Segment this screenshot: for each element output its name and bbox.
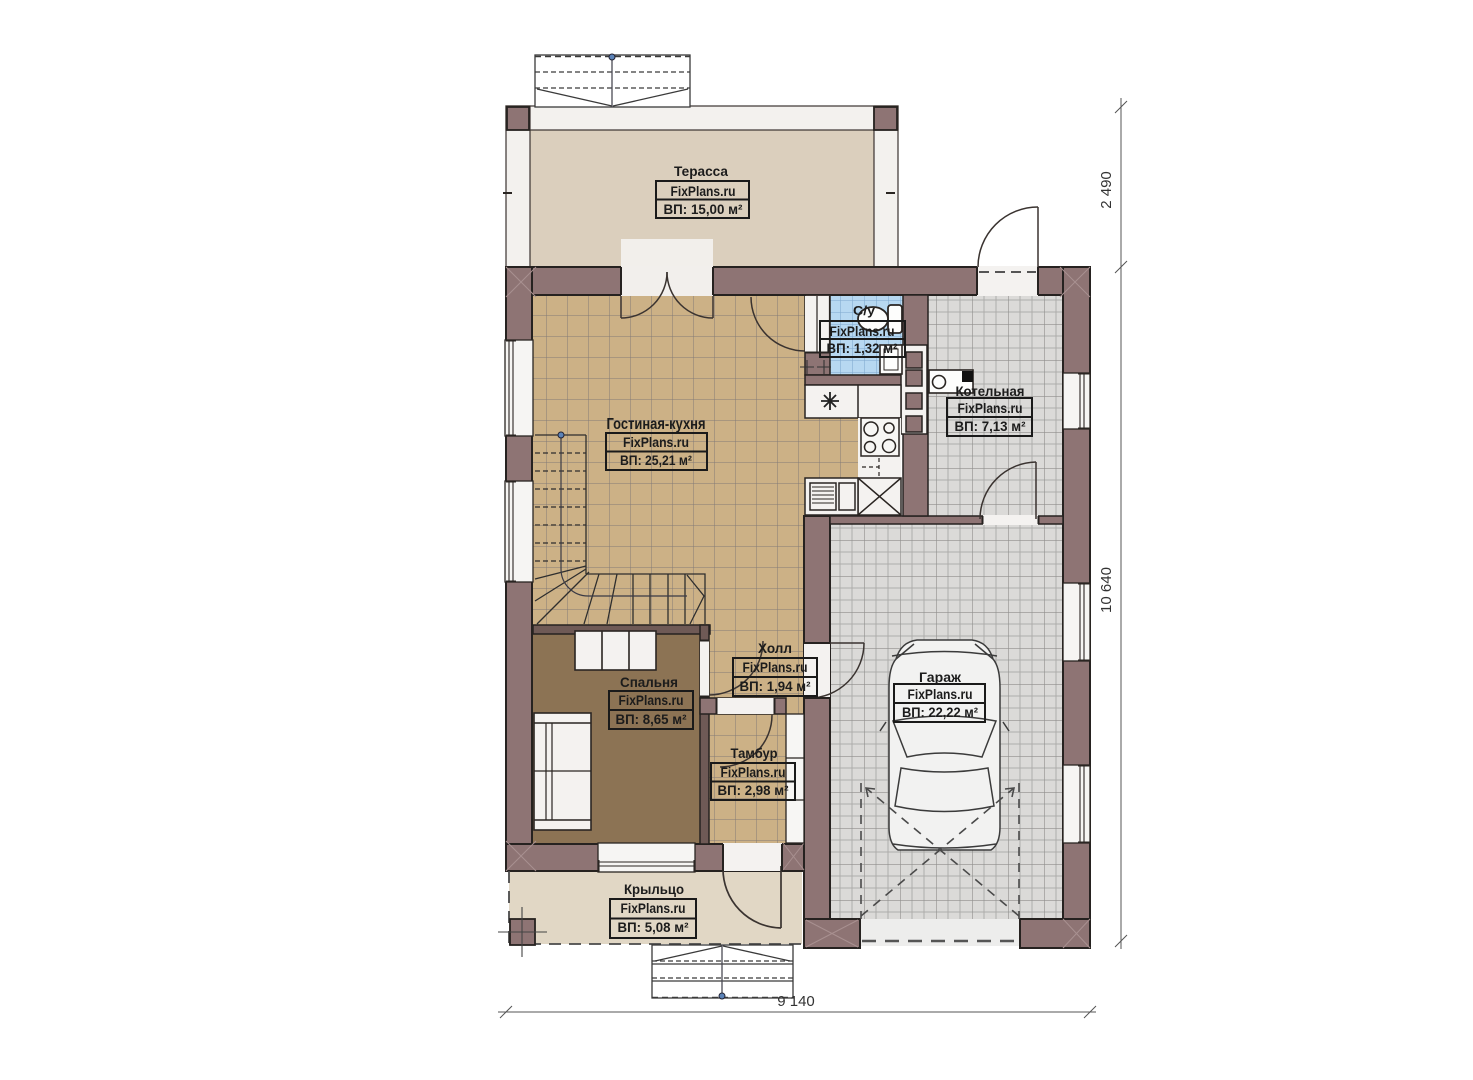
svg-text:Крыльцо: Крыльцо — [624, 881, 684, 897]
svg-text:Гостиная-кухня: Гостиная-кухня — [607, 416, 706, 433]
svg-text:FixPlans.ru: FixPlans.ru — [743, 659, 808, 675]
svg-text:Котельная: Котельная — [956, 383, 1025, 399]
svg-text:Холл: Холл — [758, 640, 792, 656]
svg-text:ВП: 8,65 м²: ВП: 8,65 м² — [616, 711, 687, 727]
svg-text:ВП: 25,21 м²: ВП: 25,21 м² — [620, 452, 692, 468]
svg-text:9 140: 9 140 — [777, 993, 815, 1010]
svg-text:ВП: 1,32 м²: ВП: 1,32 м² — [827, 340, 898, 356]
svg-text:FixPlans.ru: FixPlans.ru — [621, 900, 686, 916]
svg-text:FixPlans.ru: FixPlans.ru — [958, 400, 1023, 416]
svg-text:10 640: 10 640 — [1098, 567, 1115, 613]
svg-text:ВП: 15,00 м²: ВП: 15,00 м² — [664, 201, 743, 217]
svg-text:Терасса: Терасса — [674, 163, 728, 179]
svg-text:ВП: 7,13 м²: ВП: 7,13 м² — [955, 418, 1026, 434]
svg-text:FixPlans.ru: FixPlans.ru — [908, 686, 973, 702]
svg-text:Тамбур: Тамбур — [731, 745, 778, 761]
svg-text:FixPlans.ru: FixPlans.ru — [619, 692, 684, 708]
svg-text:FixPlans.ru: FixPlans.ru — [623, 434, 689, 450]
svg-text:ВП: 2,98 м²: ВП: 2,98 м² — [718, 782, 789, 798]
svg-text:FixPlans.ru: FixPlans.ru — [671, 183, 736, 199]
svg-text:ВП: 5,08 м²: ВП: 5,08 м² — [618, 919, 689, 935]
svg-text:FixPlans.ru: FixPlans.ru — [721, 764, 786, 780]
svg-text:ВП: 22,22 м²: ВП: 22,22 м² — [902, 704, 978, 720]
svg-text:2 490: 2 490 — [1098, 171, 1115, 209]
svg-text:С/у: С/у — [853, 303, 876, 318]
svg-text:Гараж: Гараж — [919, 669, 962, 685]
svg-text:Спальня: Спальня — [620, 674, 678, 690]
svg-text:ВП: 1,94 м²: ВП: 1,94 м² — [740, 678, 811, 694]
svg-text:FixPlans.ru: FixPlans.ru — [830, 323, 895, 339]
